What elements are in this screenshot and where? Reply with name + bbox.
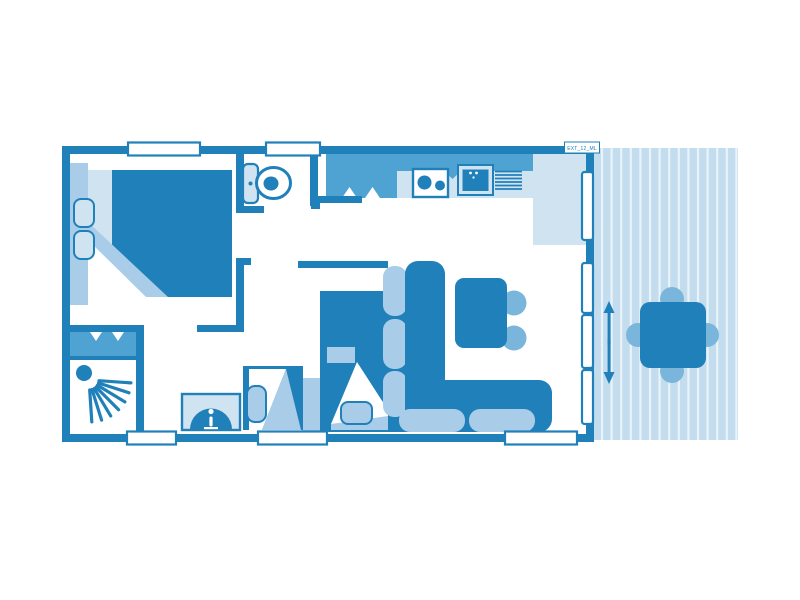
bedroom-right-wall — [236, 258, 244, 332]
faucet-dot — [475, 172, 478, 175]
pillow — [247, 386, 266, 422]
sofa-back-cushion — [383, 371, 407, 417]
bedroom2-top-wall — [298, 261, 388, 268]
burner-large — [418, 176, 432, 190]
sliding-door-panel — [582, 315, 593, 368]
window-top-bedroom — [128, 143, 200, 156]
sliding-door-panel — [582, 172, 593, 240]
mobile-home — [62, 143, 594, 445]
wc-right-wall — [310, 154, 318, 206]
burner-small — [435, 181, 445, 191]
pillow — [341, 402, 372, 424]
wardrobe-top-wall — [62, 325, 144, 332]
floor-plan-canvas: EXT_12_ML — [0, 0, 800, 600]
toilet — [243, 164, 291, 203]
terrace — [594, 148, 738, 440]
window-bottom-living — [505, 432, 577, 445]
shower-top-border — [70, 356, 136, 360]
sofa-seat-cushion — [469, 409, 535, 432]
pillow — [74, 199, 94, 227]
coffee-table — [455, 278, 507, 348]
plan-label: EXT_12_ML — [565, 142, 600, 153]
faucet-dot — [469, 172, 472, 175]
window-top-wc — [266, 143, 320, 156]
wc-bottom-wall — [236, 206, 264, 213]
wardrobe — [70, 332, 136, 356]
bedroom-bottom-wall — [197, 325, 244, 332]
sliding-door-panel — [582, 370, 593, 424]
bed-head-shelf — [327, 347, 355, 363]
kitchen-counter-right — [533, 198, 586, 245]
sliding-door-panel — [582, 263, 593, 313]
sofa-back-cushion — [383, 319, 407, 369]
bedroom-wall-stub — [243, 258, 251, 265]
sofa-back-cushion — [383, 266, 407, 316]
floor-plan: EXT_12_ML — [0, 0, 800, 600]
bed-side-shelf — [302, 378, 320, 432]
faucet-icon — [208, 409, 213, 414]
terrace-table — [640, 302, 706, 368]
entrance-door — [127, 432, 176, 445]
kitchen-sink — [458, 165, 493, 195]
plan-label-text: EXT_12_ML — [567, 146, 597, 152]
faucet-dot — [472, 176, 474, 178]
pillow — [74, 231, 94, 259]
window-bottom-bedroom2 — [258, 432, 327, 445]
washbasin — [182, 394, 240, 430]
single-bed-left — [243, 366, 303, 430]
sliding-bay-door — [582, 172, 593, 424]
sofa-seat-cushion — [399, 409, 465, 432]
stove — [413, 169, 448, 197]
fridge-cabinet — [326, 154, 397, 198]
shower-right-wall — [136, 325, 144, 434]
